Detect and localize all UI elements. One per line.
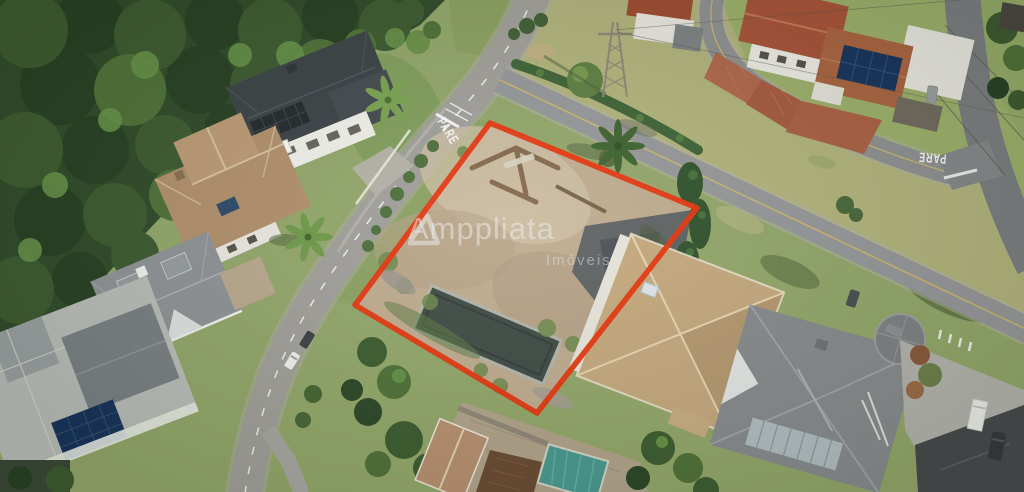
bottom-left-corner [0, 460, 74, 492]
gray-car [926, 85, 938, 103]
aerial-photo-real-estate: PARE PARE Amppliata Imóveis [0, 0, 1024, 492]
aerial-scene-canvas [0, 0, 1024, 492]
